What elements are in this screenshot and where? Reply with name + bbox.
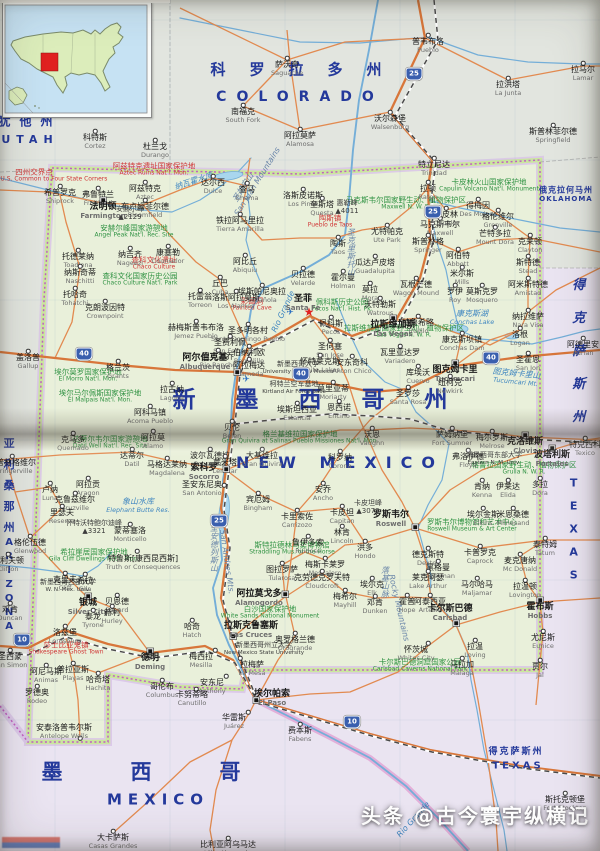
interstate-shield: 25 [406, 68, 423, 81]
city-name-en: Trinidad [418, 170, 450, 177]
city-tierra-amarilla-label: 铁拉阿马里拉Tierra Amarilla [216, 217, 264, 233]
city-name-en: Belen [223, 433, 241, 440]
city-name-en: Canutillo [176, 700, 208, 707]
city-shiprock-label: 希普罗克Shiprock [44, 189, 76, 205]
city-name-en: Fabens [288, 736, 312, 743]
city-name-en: Hobbs [526, 613, 553, 621]
city-name-en: Malaga [450, 670, 474, 677]
city-name-en: Torreon [188, 302, 212, 309]
city-name-en: Duncan [0, 615, 22, 622]
city-name-en: Wagon Mound [393, 290, 439, 297]
city-name-en: Dulce [201, 188, 225, 195]
city-name-en: Tatum [533, 550, 557, 557]
city-name-en: Moriarty [317, 394, 349, 401]
peak-elevation: ▲4011 [335, 208, 358, 216]
mountain-peak-label: 安赫尔峰▲2129 [116, 206, 144, 222]
city-kenna-label: 肯纳Kenna [472, 483, 492, 499]
city-name-en: San Jon [516, 365, 540, 372]
city-milnesand-label: 米恩桑德Milnesand [497, 511, 530, 527]
city-truth-or-consequences-marker [135, 549, 140, 554]
city-abiquiu-label: 阿比丘Abiquiu [233, 258, 258, 274]
city-name-en: Hurley [101, 618, 122, 625]
label-text: 圣安德列斯山 [209, 524, 218, 572]
city-cortez-label: 科特斯Cortez [83, 134, 107, 150]
city-name-en: Acoma Pueblo [127, 418, 173, 425]
city-name-en: Stead [516, 268, 540, 275]
city-name-en: Elida [496, 492, 520, 499]
city-gallup-label: 盖洛普Gallup [16, 354, 40, 370]
city-name-en: Holman [330, 283, 355, 290]
city-tularosa-label: 图拉罗萨Tularosa [266, 566, 298, 582]
city-name-en: Las Cruces [224, 632, 278, 640]
city-name-en: Abbott [446, 261, 470, 268]
city-la-mesa-label: 拉梅萨La Mesa [239, 661, 266, 677]
map-label: 圣克里斯托山 [346, 228, 355, 276]
map-label: 科罗拉多州 [210, 62, 405, 79]
city-name-en: Antelope Wells [36, 733, 92, 740]
city-name-en: Ute Park [371, 237, 403, 244]
city-taos-label: 陶斯Taos [330, 240, 346, 256]
city-cliff-label: 克里夫Cliff [53, 576, 77, 592]
city-name-en: Abiquiu [233, 267, 258, 274]
city-wagon-mound-label: 瓦根芒德Wagon Mound [393, 281, 439, 297]
city-durango-label: 杜兰戈Durango [141, 143, 169, 159]
label-text-en: Only Point in U.S. Common to Four State … [0, 177, 107, 184]
city-name-en: Anton Chico [332, 368, 371, 375]
city-name-en: Juárez [222, 723, 246, 730]
city-name-en: El Paso [254, 700, 290, 708]
city-name-en: Elk [360, 590, 384, 597]
city-name-en: Hondo [354, 553, 375, 560]
label-text-en: El Malpais Nat'l. Mon. [59, 398, 142, 405]
city-name-en: Cuervo [406, 378, 430, 385]
city-name-en: Caprock [464, 558, 496, 565]
peak-elevation: ▲3321 [66, 528, 122, 536]
city-hobbs-label: 霍布斯Hobbs [526, 603, 553, 620]
city-name-en: Mc Donald [503, 566, 537, 573]
city-name-en: Mosquero [466, 297, 498, 304]
map-label: 俄克拉何马州 [539, 186, 593, 195]
city-springer-label: 斯普林格Springer [412, 238, 444, 254]
city-name-en: Mesilla [189, 662, 213, 669]
city-stead-label: 斯特德Stead [516, 259, 540, 275]
city-springerville-label: 斯普林格维尔Springerville [0, 459, 36, 475]
city-name-en: Columbus [146, 692, 178, 699]
city-name-en: Velarde [291, 280, 315, 287]
city-name-en: Crownpoint [85, 313, 125, 320]
city-name-en: Floyd [452, 462, 484, 469]
city-name-en: Dora [532, 490, 548, 497]
city-mesilla-label: 梅西拉Mesilla [189, 653, 213, 669]
label-text-en: Grulla N. W. R. [472, 470, 577, 477]
city-name-en: Loving [464, 652, 485, 659]
city-cuervo-label: 库埃沃Cuervo [406, 369, 430, 385]
city-name-en: Mount Dora [476, 239, 514, 246]
inset-new-mexico-highlight [41, 53, 58, 71]
label-text: 墨西哥 [42, 760, 309, 784]
city-name-en: Durango [141, 152, 169, 159]
city-adrian-label: 阿德里安Adrian [567, 341, 599, 357]
city-orogrande-label: 奥罗格兰德Orogrande [275, 636, 315, 652]
city-malaga-label: 马拉加Malaga [450, 661, 474, 677]
city-las-cruces-label: 拉斯克鲁塞斯Las Cruces [224, 622, 278, 639]
label-text: TEXAS [492, 760, 543, 771]
city-name-en: Questa [310, 210, 334, 217]
city-fabens-label: 费本斯Fabens [288, 727, 312, 743]
city-hurley-label: 赫利Hurley [101, 609, 122, 625]
city-name-en: Encino [327, 413, 351, 420]
city-name-en: Dunken [363, 608, 388, 615]
city-lincoln-label: 林肯Lincoln [330, 529, 353, 545]
city-socorro-label: 索科罗Socorro [189, 464, 220, 481]
city-vaughn-label: 沃恩Vaughn [360, 431, 384, 447]
city-name-en: Trujillo [402, 328, 434, 335]
city-alamogordo-marker [282, 591, 288, 597]
city-chama-label: 查马Chama [236, 186, 259, 202]
city-name-en: Tyrone [82, 622, 103, 629]
map-label: 得克萨斯州 [569, 278, 584, 443]
city-hondo-label: 洪多Hondo [354, 544, 375, 560]
city-playas-label: 普拉亚斯Playas [57, 666, 89, 682]
city-name-en: Quemado [57, 445, 89, 452]
city-alamogordo-label: 阿拉莫戈多Alamogordo [235, 590, 283, 607]
city-name-en: Texico [569, 450, 600, 457]
peak-elevation: ▲3073 [354, 508, 382, 516]
city-albuquerque-marker [234, 369, 240, 375]
city-name-en: Milnesand [497, 520, 530, 527]
city-springfield-label: 斯普林菲尔德Springfield [529, 128, 577, 144]
city-name-en: La Mesa [239, 670, 266, 677]
city-hope-label: 霍普Hope [399, 598, 416, 614]
peak-elevation: ▲2129 [116, 214, 144, 222]
map-label: 安赫尔峰国家游憩地Angel Peak Nat'l. Rec. Site [94, 224, 173, 239]
city-ju-rez-label: 华雷斯Juárez [222, 714, 246, 730]
city-los-alamos-label: 洛斯阿拉莫斯Los Alamos [212, 294, 260, 310]
city-tyrone-label: 泰龙Tyrone [82, 613, 103, 629]
label-text: 圣克里斯托山 [346, 228, 355, 276]
city-name-en: Gran Quivira [241, 461, 282, 468]
city-name-en: Monticello [113, 536, 146, 543]
city-name-en: Magdalena [147, 470, 187, 477]
city-name-en: Springer [412, 247, 444, 254]
city-truth-or-consequences-label: 特鲁斯[康西昆西斯]Truth or Consequences [106, 555, 181, 571]
city-grants-label: 格兰茨Grants [106, 364, 130, 380]
city-pecos-label: 佩科斯Pecos [319, 320, 343, 336]
label-text-en: Chaco Culture Nat'l. Park [103, 281, 178, 288]
city-albuquerque-label: 阿尔伯克基Albuquerque [180, 354, 231, 371]
label-text-en: Capulin Volcano Nat'l. Monument [439, 187, 539, 194]
city-name-en: Gila [77, 586, 93, 593]
city-name-en: La Junta [495, 90, 521, 97]
city-fort-sumner-label: 萨姆纳堡Fort Sumner [432, 431, 472, 447]
label-text: MEXICO [107, 792, 209, 809]
city-gran-quivira-label: 大基维拉Gran Quivira [241, 452, 282, 468]
city-name-en: Conchas Dam [439, 345, 484, 352]
city-mosquero-label: 莫斯克罗Mosquero [466, 288, 498, 304]
city-columbus-label: 哥伦布Columbus [146, 683, 178, 699]
city-ruidoso-label: 鲁伊多索Ruidoso [292, 539, 324, 555]
city-laguna-label: 拉古纳Laguna [160, 386, 184, 402]
city-name-en: Carlsbad [427, 615, 472, 623]
city-name-en: Walsenburg [371, 124, 409, 131]
city-name-en: Hope [399, 607, 416, 614]
interstate-shield: 10 [344, 716, 361, 729]
map-label: 查科文化国家历史公园Chaco Culture Nat'l. Park [103, 272, 178, 287]
city-magdalena-label: 马格达莱纳Magdalena [147, 461, 187, 477]
city-cloudcroft-label: 克劳德克罗夫特Cloudcroft [294, 574, 350, 590]
city-socorro-marker [223, 466, 229, 472]
city-name-en: Clayton [518, 247, 543, 254]
city-logan-label: 洛根Logan [510, 331, 530, 347]
city-clayton-label: 克莱顿Clayton [518, 238, 543, 254]
city-name-en: Springfield [529, 137, 577, 144]
city-casas-grandes-label: 大卡萨斯Casas Grandes [89, 834, 138, 850]
city-san-antonio-marker [222, 483, 227, 488]
interstate-shield: 25 [425, 206, 442, 219]
city-name-en: Playas [57, 675, 89, 682]
city-caprock-label: 卡普罗克Caprock [464, 549, 496, 565]
map-label: 埃尔马尔佩斯国家保护地El Malpais Nat'l. Mon. [59, 389, 142, 404]
city-corona-label: 科罗纳Corona [328, 454, 352, 470]
city-name-en: Albuquerque [180, 364, 231, 372]
city-loving-label: 拉温Loving [464, 643, 485, 659]
city-name-en: Laguna [160, 395, 184, 402]
city-mount-dora-label: 芒特多拉Mount Dora [476, 230, 514, 246]
city-name-en: Orogrande [275, 645, 315, 652]
map-label: 象山水库Elephant Butte Res. [106, 498, 170, 514]
city-lovington-label: 拉温顿Lovington [509, 583, 541, 599]
interstate-shield: 40 [76, 348, 93, 361]
city-hachita-label: 哈奇塔Hachita [86, 676, 111, 692]
city-lake-arthur-label: 莱克阿瑟Lake Arthur [409, 574, 447, 590]
city-alamo-label: 阿拉莫Alamo [141, 434, 165, 450]
city-holman-label: 霍尔曼Holman [330, 274, 355, 290]
city-name-en: Carrizozo [281, 522, 313, 529]
map-label: San Andres Mts. [217, 529, 235, 595]
city-name-en: Hatch [182, 632, 201, 639]
city-ute-park-label: 尤特帕克Ute Park [371, 228, 403, 244]
label-text-en: Elephant Butte Res. [106, 507, 170, 514]
city-clifton-label: 克利夫顿Clifton [0, 557, 24, 573]
city-name-en: Counselor [152, 258, 185, 265]
city-name-en: Datil [120, 461, 144, 468]
city-ancho-label: 安乔Ancho [313, 486, 333, 502]
city-carrizozo-label: 卡里索佐Carrizozo [281, 513, 313, 529]
city-eunice-label: 尤尼斯Eunice [531, 634, 555, 650]
label-text: San Andres Mts. [217, 529, 235, 595]
city-name-en: Jal [532, 672, 548, 679]
city-name-en: Alamo [141, 443, 165, 450]
label-text: 俄克拉何马州 [539, 186, 593, 195]
city-elida-label: 伊莱达Elida [496, 483, 520, 499]
label-text-en: White Sands National Monument [221, 614, 320, 621]
city-raton-label: 拉顿Raton [418, 185, 437, 201]
city-belen-label: 贝伦Belen [223, 424, 241, 440]
map-label: 四州交界点Only Point in U.S. Common to Four S… [0, 168, 107, 183]
city-santa-rosa-label: 圣罗莎Santa Rosa [390, 390, 426, 406]
city-name-en: Cliff [53, 585, 77, 592]
city-name-en: Eunice [531, 643, 555, 650]
city-name-en: Naschitti [64, 278, 96, 285]
city-ju-rez-marker [246, 710, 251, 715]
city-name-en: Elkins [467, 520, 499, 527]
city-alamosa-label: 阿拉莫萨Alamosa [284, 132, 316, 148]
city-dora-label: 多拉Dora [532, 481, 548, 497]
city-grenville-label: 格伦维尔Grenville [482, 213, 514, 229]
city-jal-label: 贾尔Jal [532, 663, 548, 679]
city-quemado-label: 克马多Quemado [57, 436, 89, 452]
airport-icon: ✈ [286, 308, 294, 318]
city-roswell-marker [412, 524, 418, 530]
city-name-en: Nageezi [117, 260, 143, 267]
label-text-en: Aztec Ruins Nat'l. Mon. [113, 171, 196, 178]
city-variadero-label: 瓦里亚达罗Variadero [380, 349, 420, 365]
us-inset-map [3, 3, 149, 115]
city-name-en: Newkirk [437, 388, 463, 395]
city-name-en: Lake Arthur [409, 583, 447, 590]
paper-edge [0, 0, 170, 3]
city-canutillo-label: 卡努蒂略Canutillo [176, 691, 208, 707]
city-la-junta-label: 拉洪塔La Junta [495, 81, 521, 97]
map-label: TEXAS [492, 760, 543, 771]
city-name-en: Grenville [482, 222, 514, 229]
city-name-en: Tierra Amarilla [216, 226, 264, 233]
city-mesilla-marker [213, 648, 218, 653]
city-maljamar-label: 马尔哈马Maljamar [461, 581, 493, 597]
city-name-en: Maljamar [461, 590, 493, 597]
city-name-en: Springerville [0, 468, 36, 475]
city-roy-label: 罗伊Roy [447, 288, 463, 304]
city-el-paso-label: 埃尔帕索El Paso [254, 690, 290, 707]
city-name-en: Guadalupita [355, 268, 395, 275]
city-name-en: Alamosa [284, 141, 316, 148]
label-text-en: Angel Peak Nat'l. Rec. Site [94, 233, 173, 240]
label-text-en: Conchas Lake [450, 319, 494, 326]
city-name-en: Hachita [86, 685, 111, 692]
city-name-en: Mayhill [333, 602, 357, 609]
label-text: 科罗拉多州 [210, 62, 405, 79]
city-name-en: Roswell [373, 521, 409, 529]
city-name-en: Casas Grandes [89, 843, 138, 850]
city-name-en: Variadero [380, 358, 420, 365]
us-locator-inset [2, 2, 152, 118]
city-name-en: Melrose [476, 443, 508, 450]
map-label: 墨西哥 [42, 760, 309, 784]
city-name-en: Taos [330, 249, 346, 256]
city-name-en: Vaughn [360, 440, 384, 447]
label-text-en: Roswell Museum & Art Center [427, 527, 517, 534]
label-text: TEXAS [567, 477, 579, 592]
city-name-en: Cloudcroft [294, 583, 350, 590]
city-walsenburg-label: 沃尔森堡Walsenburg [371, 115, 409, 131]
city-name-en: San Antonio [182, 490, 222, 497]
city-conchas-dam-label: 康克斯坝镇Conchas Dam [439, 336, 484, 352]
city-san-jon-label: 圣霍恩San Jon [516, 356, 540, 372]
city-name-en: Lamar [571, 75, 595, 82]
inset-hawaii [34, 105, 36, 107]
publisher-stamp [2, 837, 60, 848]
city-saguache-label: 萨沃奇Saguache [271, 61, 303, 77]
map-label: 得克萨斯州 [488, 747, 543, 757]
city-floyd-label: 弗洛伊德Floyd [452, 453, 484, 469]
map-label: 圣安德列斯山 [209, 524, 218, 572]
city-name-en: Lordsburg [49, 638, 81, 645]
city-name-en: Portales [534, 461, 570, 469]
city-bingham-label: 宾厄姆Bingham [244, 496, 273, 512]
airport-icon: ✈ [242, 375, 250, 385]
city-name-en: Cortez [83, 143, 107, 150]
map-label: 阿兹特克遗址国家保护地Aztec Ruins Nat'l. Mon. [113, 162, 196, 177]
city-gila-label: 希拉Gila [77, 577, 93, 593]
city-name-en: San Simon [0, 662, 27, 669]
city-anthony-marker [224, 674, 229, 679]
city-san-antonio-label: 圣安东尼奥San Antonio [182, 481, 222, 497]
city-portales-label: 波塔利斯Portales [534, 451, 570, 468]
interstate-shield: 40 [293, 368, 310, 381]
city-counselor-label: 康塞勒Counselor [152, 249, 185, 265]
city-texico-label: 特克西科Texico [569, 441, 600, 457]
city-name-en: Logan [510, 340, 530, 347]
map-label: 康克斯湖Conchas Lake [450, 310, 494, 326]
map-labels-layer: 科罗拉多州COLORADO犹他州UTAH新墨西哥州NEW MEXICO墨西哥ME… [0, 0, 600, 851]
city-name-en: Shiprock [44, 198, 76, 205]
interstate-shield: 10 [14, 634, 31, 647]
city-name-en: Roy [447, 297, 463, 304]
city-lamar-label: 拉马尔Lamar [571, 66, 595, 82]
city-name-en: South Fork [226, 117, 261, 124]
city-name-en: Pecos [319, 329, 343, 336]
map-page: 科罗拉多州COLORADO犹他州UTAH新墨西哥州NEW MEXICO墨西哥ME… [0, 0, 600, 851]
city-tatum-label: 泰特姆Tatum [533, 541, 557, 557]
city-name-en: Tularosa [266, 575, 298, 582]
label-text-en: Gran Quivira at Salinas Pueblo Missiones… [222, 439, 378, 446]
interstate-shield: 25 [211, 515, 228, 528]
city-name-en: Raton [418, 194, 437, 201]
city-moriarty-label: 莫里亚蒂Moriarty [317, 385, 349, 401]
city-naschitti-label: 纳斯奇蒂Naschitti [64, 269, 96, 285]
city-melrose-label: 梅尔罗斯Melrose [476, 434, 508, 450]
city-name-en: Adrian [567, 350, 599, 357]
city-dulce-label: 达尔西Dulce [201, 179, 225, 195]
city-villa-ahumada-label: 比利亚阿乌马达Villa Ahumada [200, 841, 256, 851]
city-name-en: Los Alamos [212, 303, 260, 310]
city-estancia-label: 埃斯坦西亚Estancia [277, 406, 317, 422]
city-name-en: Bingham [244, 505, 273, 512]
city-encino-label: 恩西诺Encino [327, 404, 351, 420]
city-carlsbad-label: 卡尔斯巴德Carlsbad [427, 605, 472, 622]
city-south-fork-label: 南福克South Fork [226, 108, 261, 124]
city-newkirk-label: 纽柯克Newkirk [437, 379, 463, 395]
city-rodeo-label: 罗德奥Rodeo [25, 689, 49, 705]
city-mayhill-label: 梅希尔Mayhill [333, 593, 357, 609]
city-capitan-label: 卡皮坦Capitan [329, 509, 354, 525]
city-mc-donald-label: 麦克唐纳Mc Donald [503, 557, 537, 573]
label-text: OKLAHOMA [539, 196, 592, 204]
city-name-en: Santa Rosa [390, 399, 426, 406]
map-label: 白沙国家保护地White Sands National Monument [221, 605, 320, 620]
city-name-en: Lincoln [330, 538, 353, 545]
city-elk-label: 埃尔克Elk [360, 581, 384, 597]
city-acoma-pueblo-label: 阿科马镇Acoma Pueblo [127, 409, 173, 425]
city-name-en: Whites City [397, 655, 434, 662]
city-name-en: Alamogordo [235, 600, 283, 608]
city-deming-label: 德明Deming [135, 654, 165, 671]
mountain-peak-label: 卡皮坦峰▲3073 [354, 500, 382, 516]
city-datil-label: 达蒂尔Datil [120, 452, 144, 468]
city-duncan-label: 邓肯Duncan [0, 606, 22, 622]
map-label: 卡皮林火山国家保护地Capulin Volcano Nat'l. Monumen… [439, 178, 539, 193]
city-nageezi-label: 纳吉齐Nageezi [117, 251, 143, 267]
